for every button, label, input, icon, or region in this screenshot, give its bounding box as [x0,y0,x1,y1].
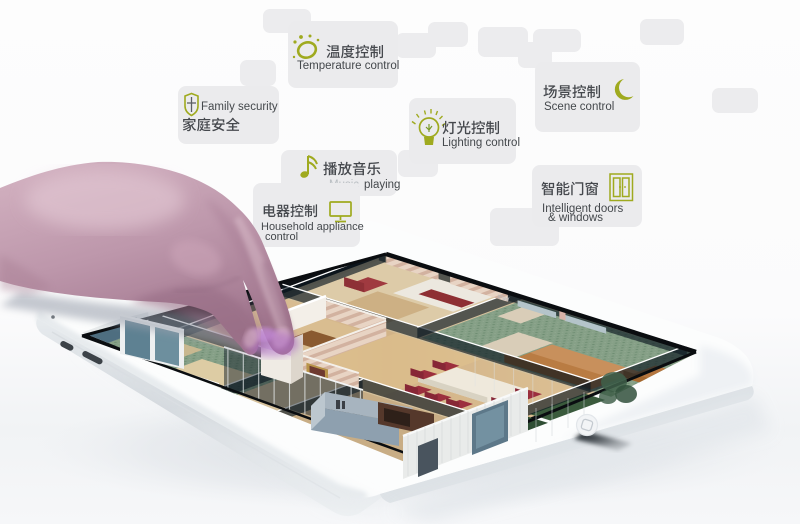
svg-text:Temperature control: Temperature control [297,60,399,72]
svg-text:Family security: Family security [201,101,278,113]
svg-text:playing: playing [364,179,400,191]
svg-text:Lighting control: Lighting control [442,137,520,149]
svg-text:control: control [265,231,298,243]
svg-text:Scene control: Scene control [544,101,614,113]
svg-text:& windows: & windows [548,212,603,224]
